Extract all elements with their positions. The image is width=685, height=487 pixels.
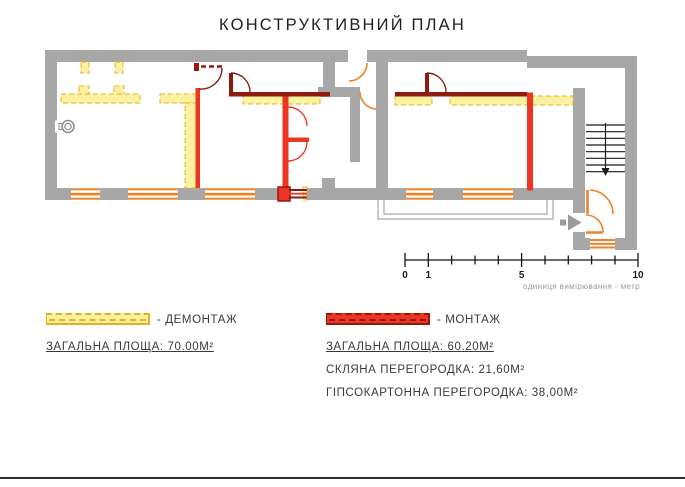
installation-elements xyxy=(194,63,533,201)
glass-partition-area: СКЛЯНА ПЕРЕГОРОДКА: 21,60М² xyxy=(326,364,525,376)
window xyxy=(128,188,178,199)
window xyxy=(205,188,255,199)
drywall-partition-area: ГІПСОКАРТОННА ПЕРЕГОРОДКА: 38,00М² xyxy=(326,387,578,399)
entrance-arrow-icon xyxy=(560,215,582,231)
bottom-rule xyxy=(0,477,685,479)
scale-label-1: 1 xyxy=(426,270,432,281)
scale-label-0: 0 xyxy=(402,270,408,281)
demolition-elements xyxy=(61,62,573,200)
scale-unit-caption: одиниця вимірювання - метр xyxy=(523,282,640,291)
doors xyxy=(199,63,613,233)
window xyxy=(71,188,100,199)
window xyxy=(406,188,433,199)
installation-label: - МОНТАЖ xyxy=(437,314,501,326)
column-symbol xyxy=(55,121,74,133)
demolition-label: - ДЕМОНТАЖ xyxy=(157,314,237,326)
demolition-swatch-dash xyxy=(49,319,146,321)
scale-bar: 0 1 5 10 одиниця вимірювання - метр xyxy=(402,253,644,291)
installation-swatch-dash xyxy=(329,319,426,321)
stairs xyxy=(586,123,625,176)
scale-label-10: 10 xyxy=(632,270,644,281)
scale-label-5: 5 xyxy=(519,270,525,281)
installation-swatch xyxy=(326,313,430,325)
floor-plan: 0 1 5 10 одиниця вимірювання - метр xyxy=(0,0,685,487)
demolition-swatch xyxy=(46,313,150,325)
walls xyxy=(45,50,637,250)
window xyxy=(463,188,513,199)
installation-total-area: ЗАГАЛЬНА ПЛОЩА: 60.20М² xyxy=(326,341,494,353)
construction-plan-page: КОНСТРУКТИВНИЙ ПЛАН xyxy=(0,0,685,487)
porch-outline xyxy=(378,200,553,219)
window xyxy=(590,239,615,249)
demolition-total-area: ЗАГАЛЬНА ПЛОЩА: 70.00М² xyxy=(46,341,214,353)
